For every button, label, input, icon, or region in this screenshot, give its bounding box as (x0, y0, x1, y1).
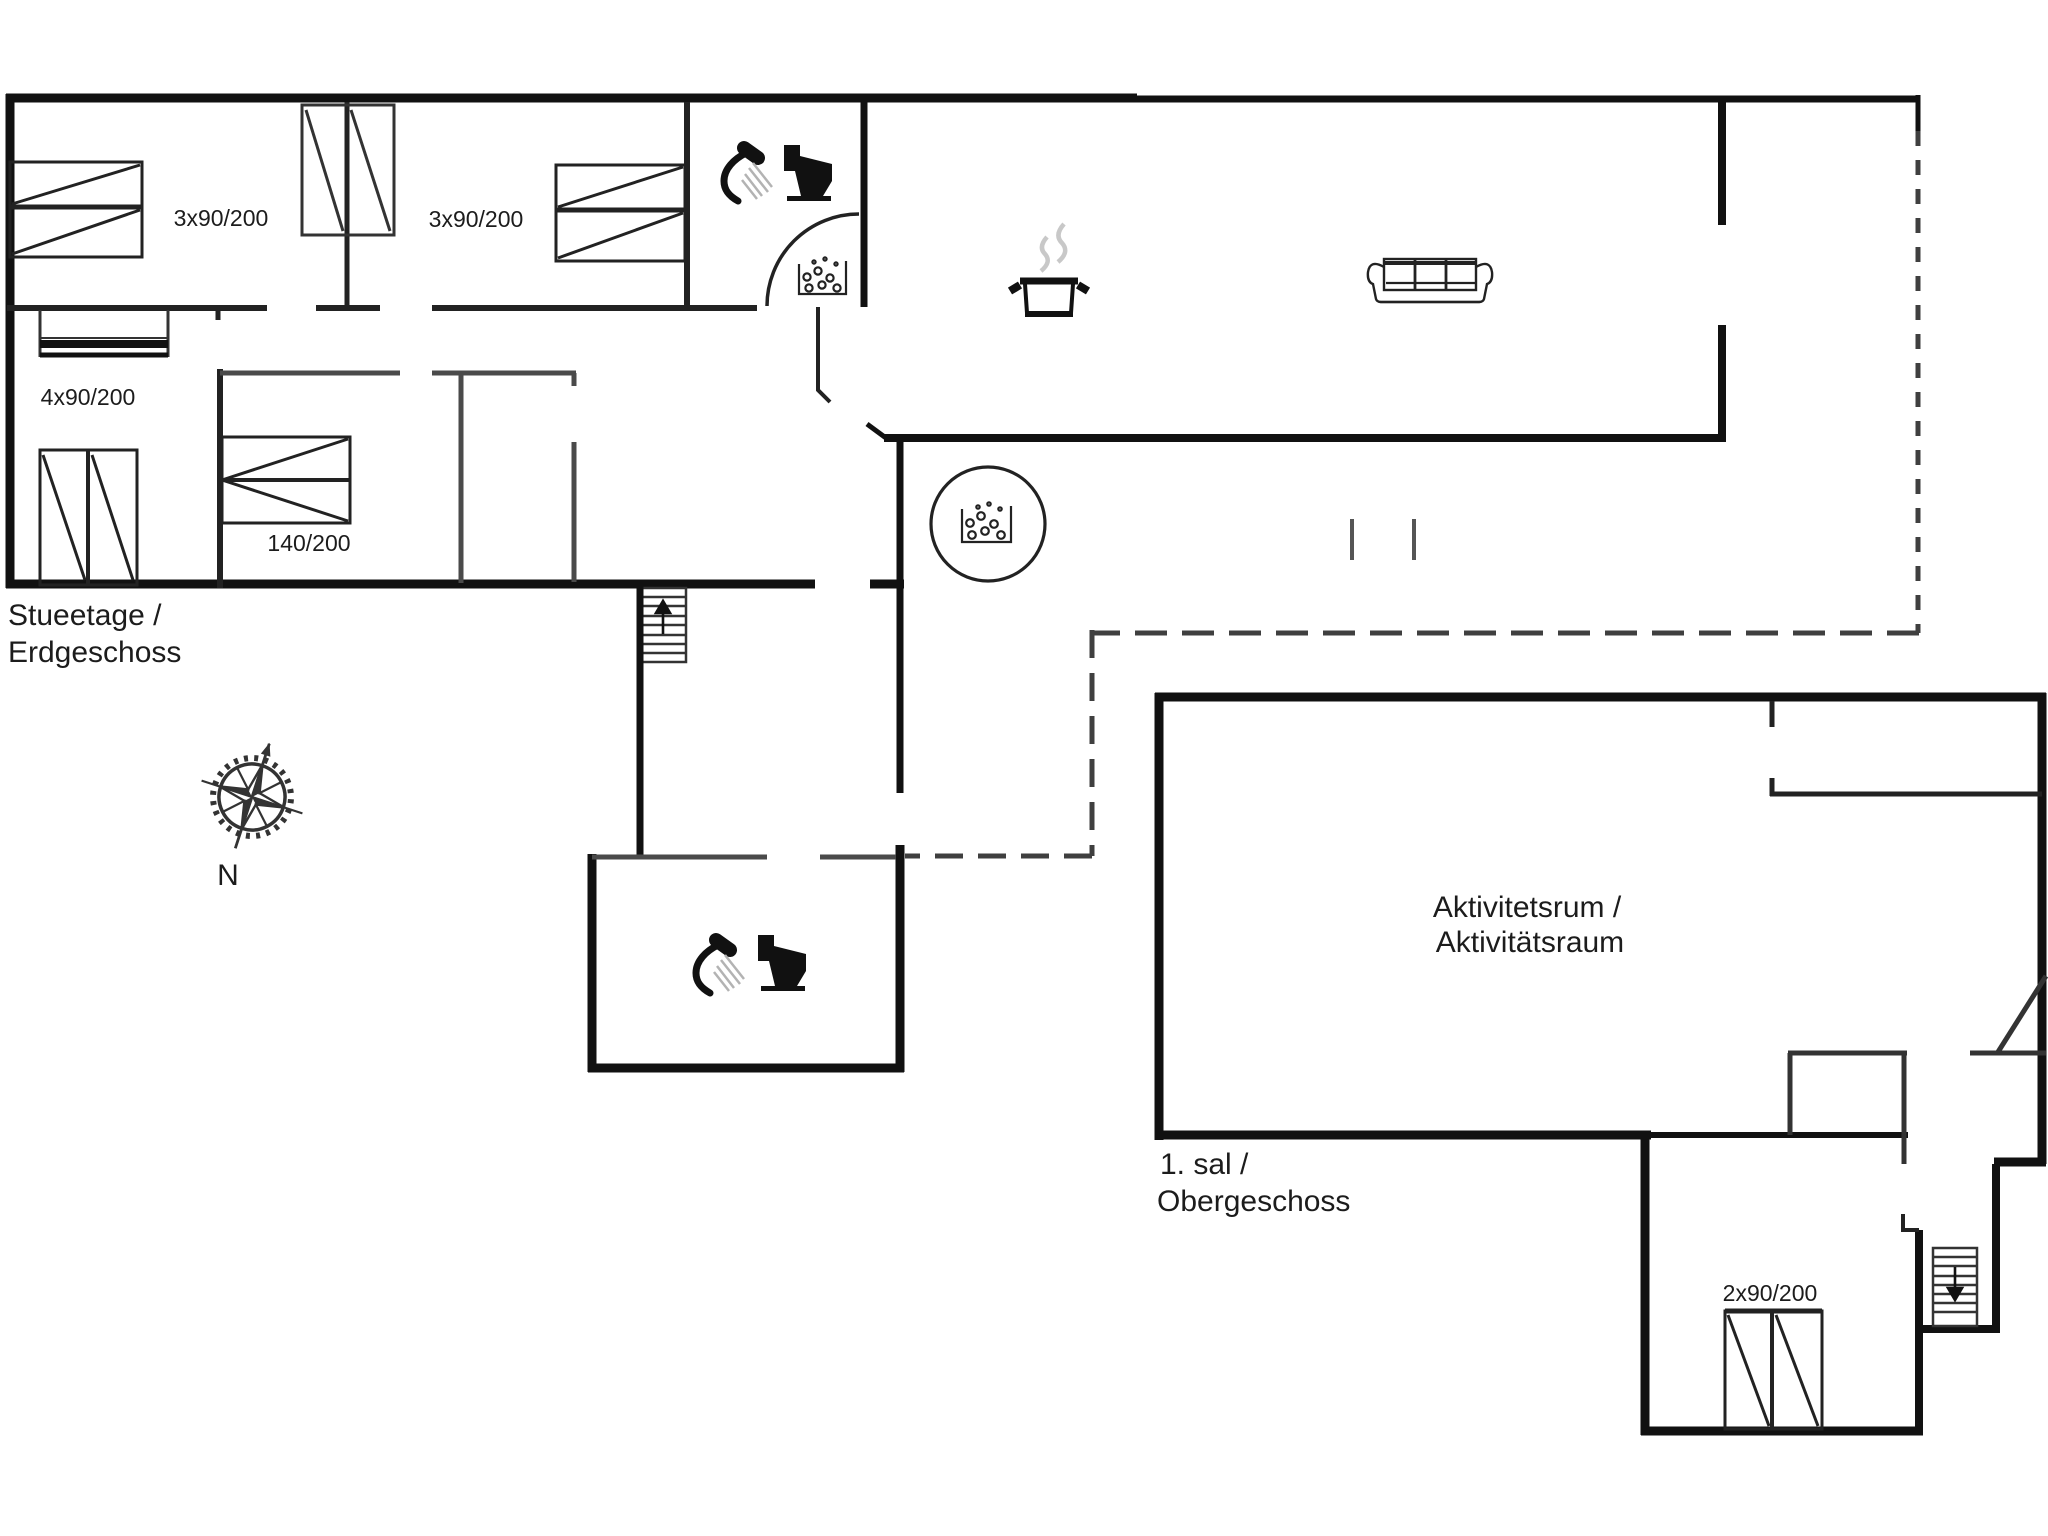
svg-text:140/200: 140/200 (267, 530, 350, 556)
svg-text:Stueetage /: Stueetage / (8, 599, 162, 632)
svg-text:3x90/200: 3x90/200 (174, 205, 269, 231)
svg-text:Aktivitetsrum /: Aktivitetsrum / (1433, 891, 1622, 924)
svg-text:N: N (217, 859, 239, 892)
svg-text:Aktivitätsraum: Aktivitätsraum (1436, 926, 1624, 959)
svg-text:Obergeschoss: Obergeschoss (1157, 1185, 1350, 1218)
svg-text:Erdgeschoss: Erdgeschoss (8, 636, 181, 669)
svg-text:3x90/200: 3x90/200 (429, 206, 524, 232)
svg-text:2x90/200: 2x90/200 (1723, 1280, 1818, 1306)
svg-text:1. sal /: 1. sal / (1160, 1148, 1249, 1181)
svg-text:4x90/200: 4x90/200 (41, 384, 136, 410)
